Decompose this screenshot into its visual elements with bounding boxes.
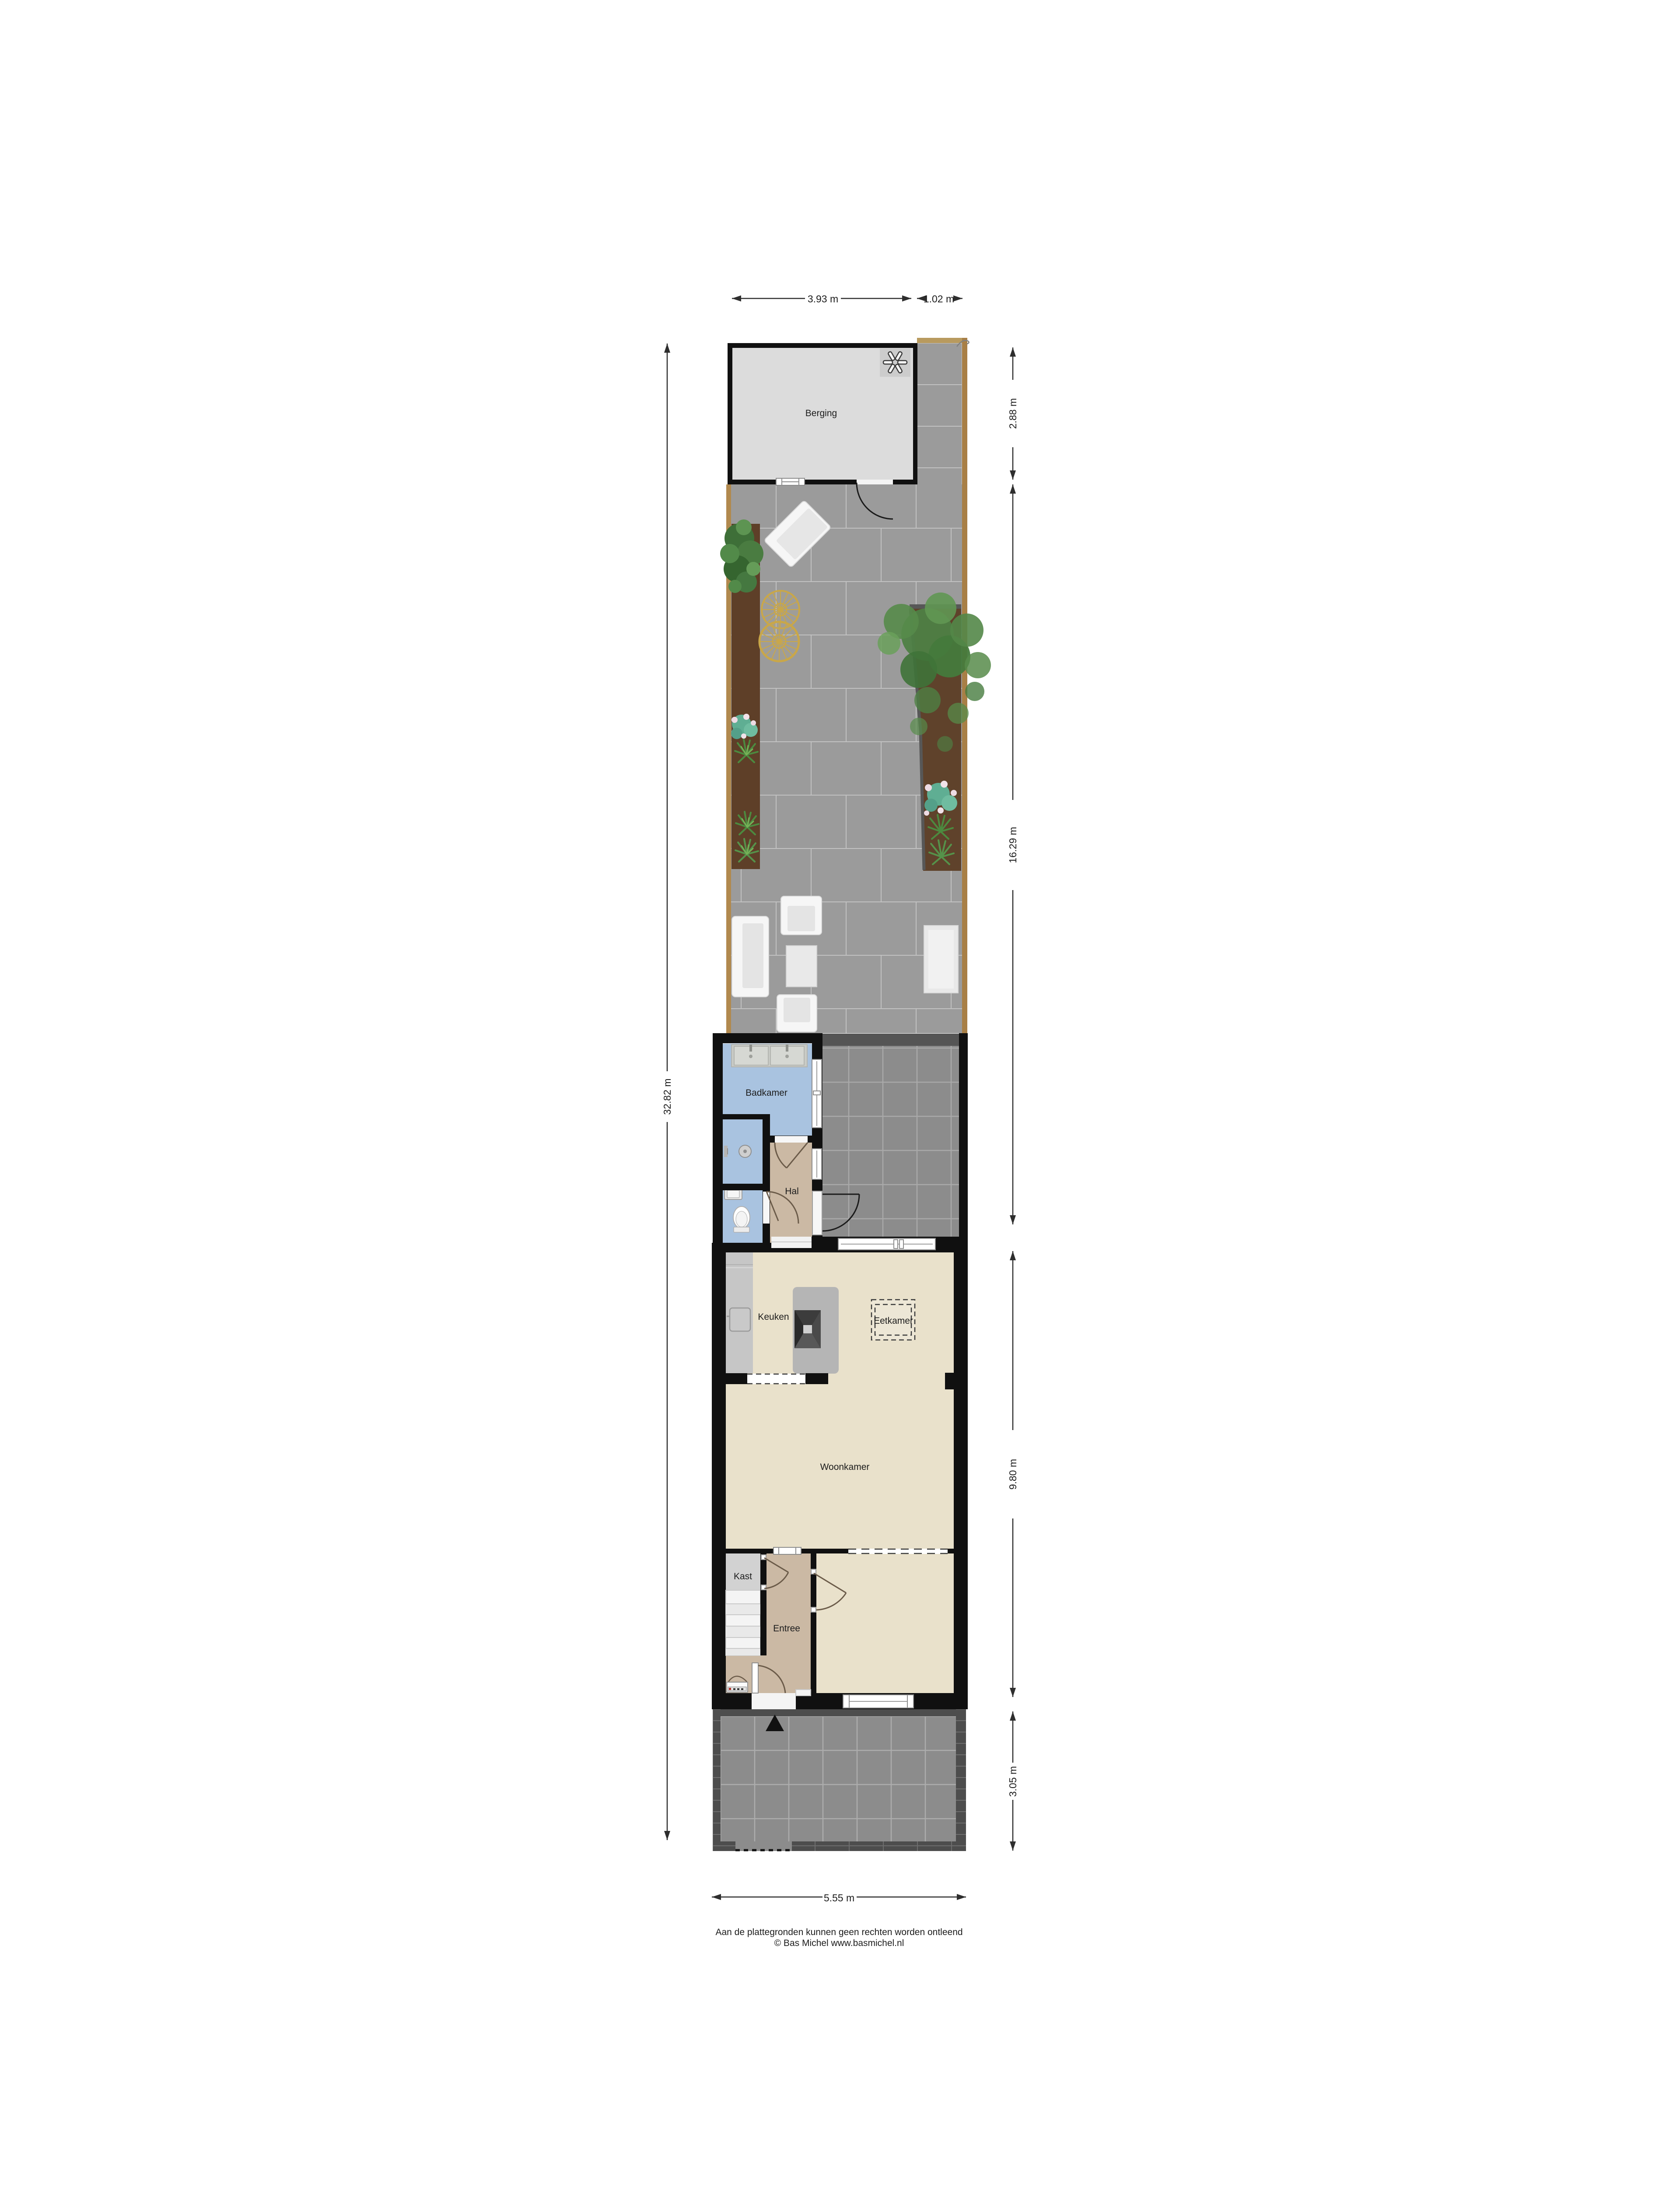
- svg-text:2.88 m: 2.88 m: [1007, 398, 1018, 429]
- svg-text:Aan de plattegronden kunnen ge: Aan de plattegronden kunnen geen rechten…: [715, 1927, 962, 1937]
- svg-text:Kast: Kast: [734, 1571, 752, 1581]
- svg-text:Badkamer: Badkamer: [745, 1088, 787, 1098]
- svg-text:32.82 m: 32.82 m: [661, 1078, 673, 1115]
- svg-text:Berging: Berging: [805, 408, 837, 418]
- svg-text:3.93 m: 3.93 m: [808, 293, 838, 305]
- svg-text:5.55 m: 5.55 m: [824, 1892, 854, 1904]
- svg-text:9.80 m: 9.80 m: [1007, 1459, 1018, 1490]
- svg-text:Woonkamer: Woonkamer: [820, 1462, 870, 1472]
- svg-text:Hal: Hal: [785, 1186, 799, 1196]
- svg-text:Keuken: Keuken: [758, 1312, 789, 1322]
- svg-text:16.29 m: 16.29 m: [1007, 827, 1018, 863]
- svg-text:Eetkamer: Eetkamer: [874, 1316, 913, 1326]
- svg-text:1.02 m: 1.02 m: [924, 293, 954, 305]
- svg-text:3.05 m: 3.05 m: [1007, 1766, 1018, 1797]
- svg-text:Entree: Entree: [773, 1623, 800, 1634]
- svg-text:© Bas Michel www.basmichel.nl: © Bas Michel www.basmichel.nl: [774, 1938, 904, 1948]
